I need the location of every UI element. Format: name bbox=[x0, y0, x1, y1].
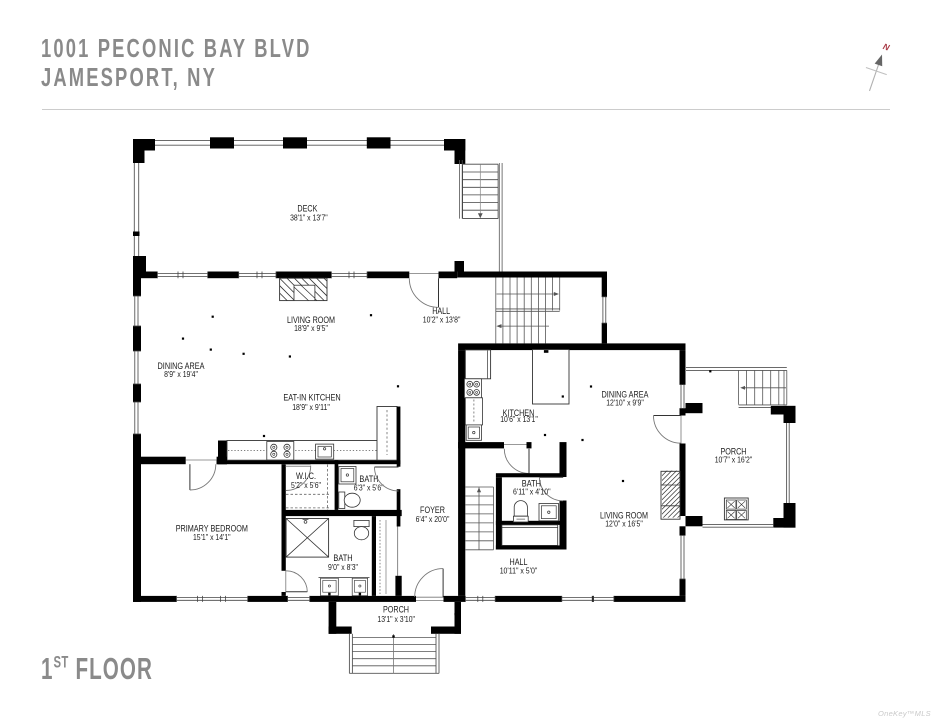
svg-text:5'2" x 5'6": 5'2" x 5'6" bbox=[291, 481, 321, 490]
svg-text:18'9" x 9'11": 18'9" x 9'11" bbox=[292, 403, 330, 412]
svg-text:18'9" x 9'5": 18'9" x 9'5" bbox=[294, 324, 328, 333]
svg-text:8'9" x 19'4": 8'9" x 19'4" bbox=[164, 370, 198, 379]
svg-text:PORCH: PORCH bbox=[383, 605, 409, 615]
svg-text:10'7" x 16'2": 10'7" x 16'2" bbox=[715, 455, 753, 464]
svg-text:10'2" x 13'8": 10'2" x 13'8" bbox=[423, 316, 461, 325]
svg-text:15'1" x 14'1": 15'1" x 14'1" bbox=[193, 533, 231, 542]
svg-text:DECK: DECK bbox=[297, 204, 317, 214]
svg-text:10'6" x 13'1": 10'6" x 13'1" bbox=[500, 415, 538, 424]
svg-text:12'0" x 16'5": 12'0" x 16'5" bbox=[605, 519, 643, 528]
svg-text:HALL: HALL bbox=[510, 557, 528, 567]
svg-text:BATH: BATH bbox=[333, 553, 352, 563]
svg-text:W.I.C.: W.I.C. bbox=[296, 471, 316, 481]
svg-text:12'10" x 9'9": 12'10" x 9'9" bbox=[606, 399, 644, 408]
svg-text:FOYER: FOYER bbox=[420, 505, 445, 515]
svg-text:N: N bbox=[882, 41, 892, 53]
svg-text:6'3" x 5'6": 6'3" x 5'6" bbox=[354, 484, 384, 493]
svg-text:EAT-IN KITCHEN: EAT-IN KITCHEN bbox=[283, 393, 340, 403]
svg-text:38'1" x 13'7": 38'1" x 13'7" bbox=[290, 214, 328, 223]
svg-text:6'4" x 20'0": 6'4" x 20'0" bbox=[416, 515, 450, 524]
svg-text:10'11" x 5'0": 10'11" x 5'0" bbox=[500, 566, 538, 575]
svg-text:9'0" x 8'3": 9'0" x 8'3" bbox=[328, 563, 358, 572]
svg-text:6'11" x 4'10": 6'11" x 4'10" bbox=[513, 487, 551, 496]
svg-text:PRIMARY BEDROOM: PRIMARY BEDROOM bbox=[176, 524, 248, 534]
svg-text:13'1" x 3'10": 13'1" x 3'10" bbox=[377, 615, 415, 624]
